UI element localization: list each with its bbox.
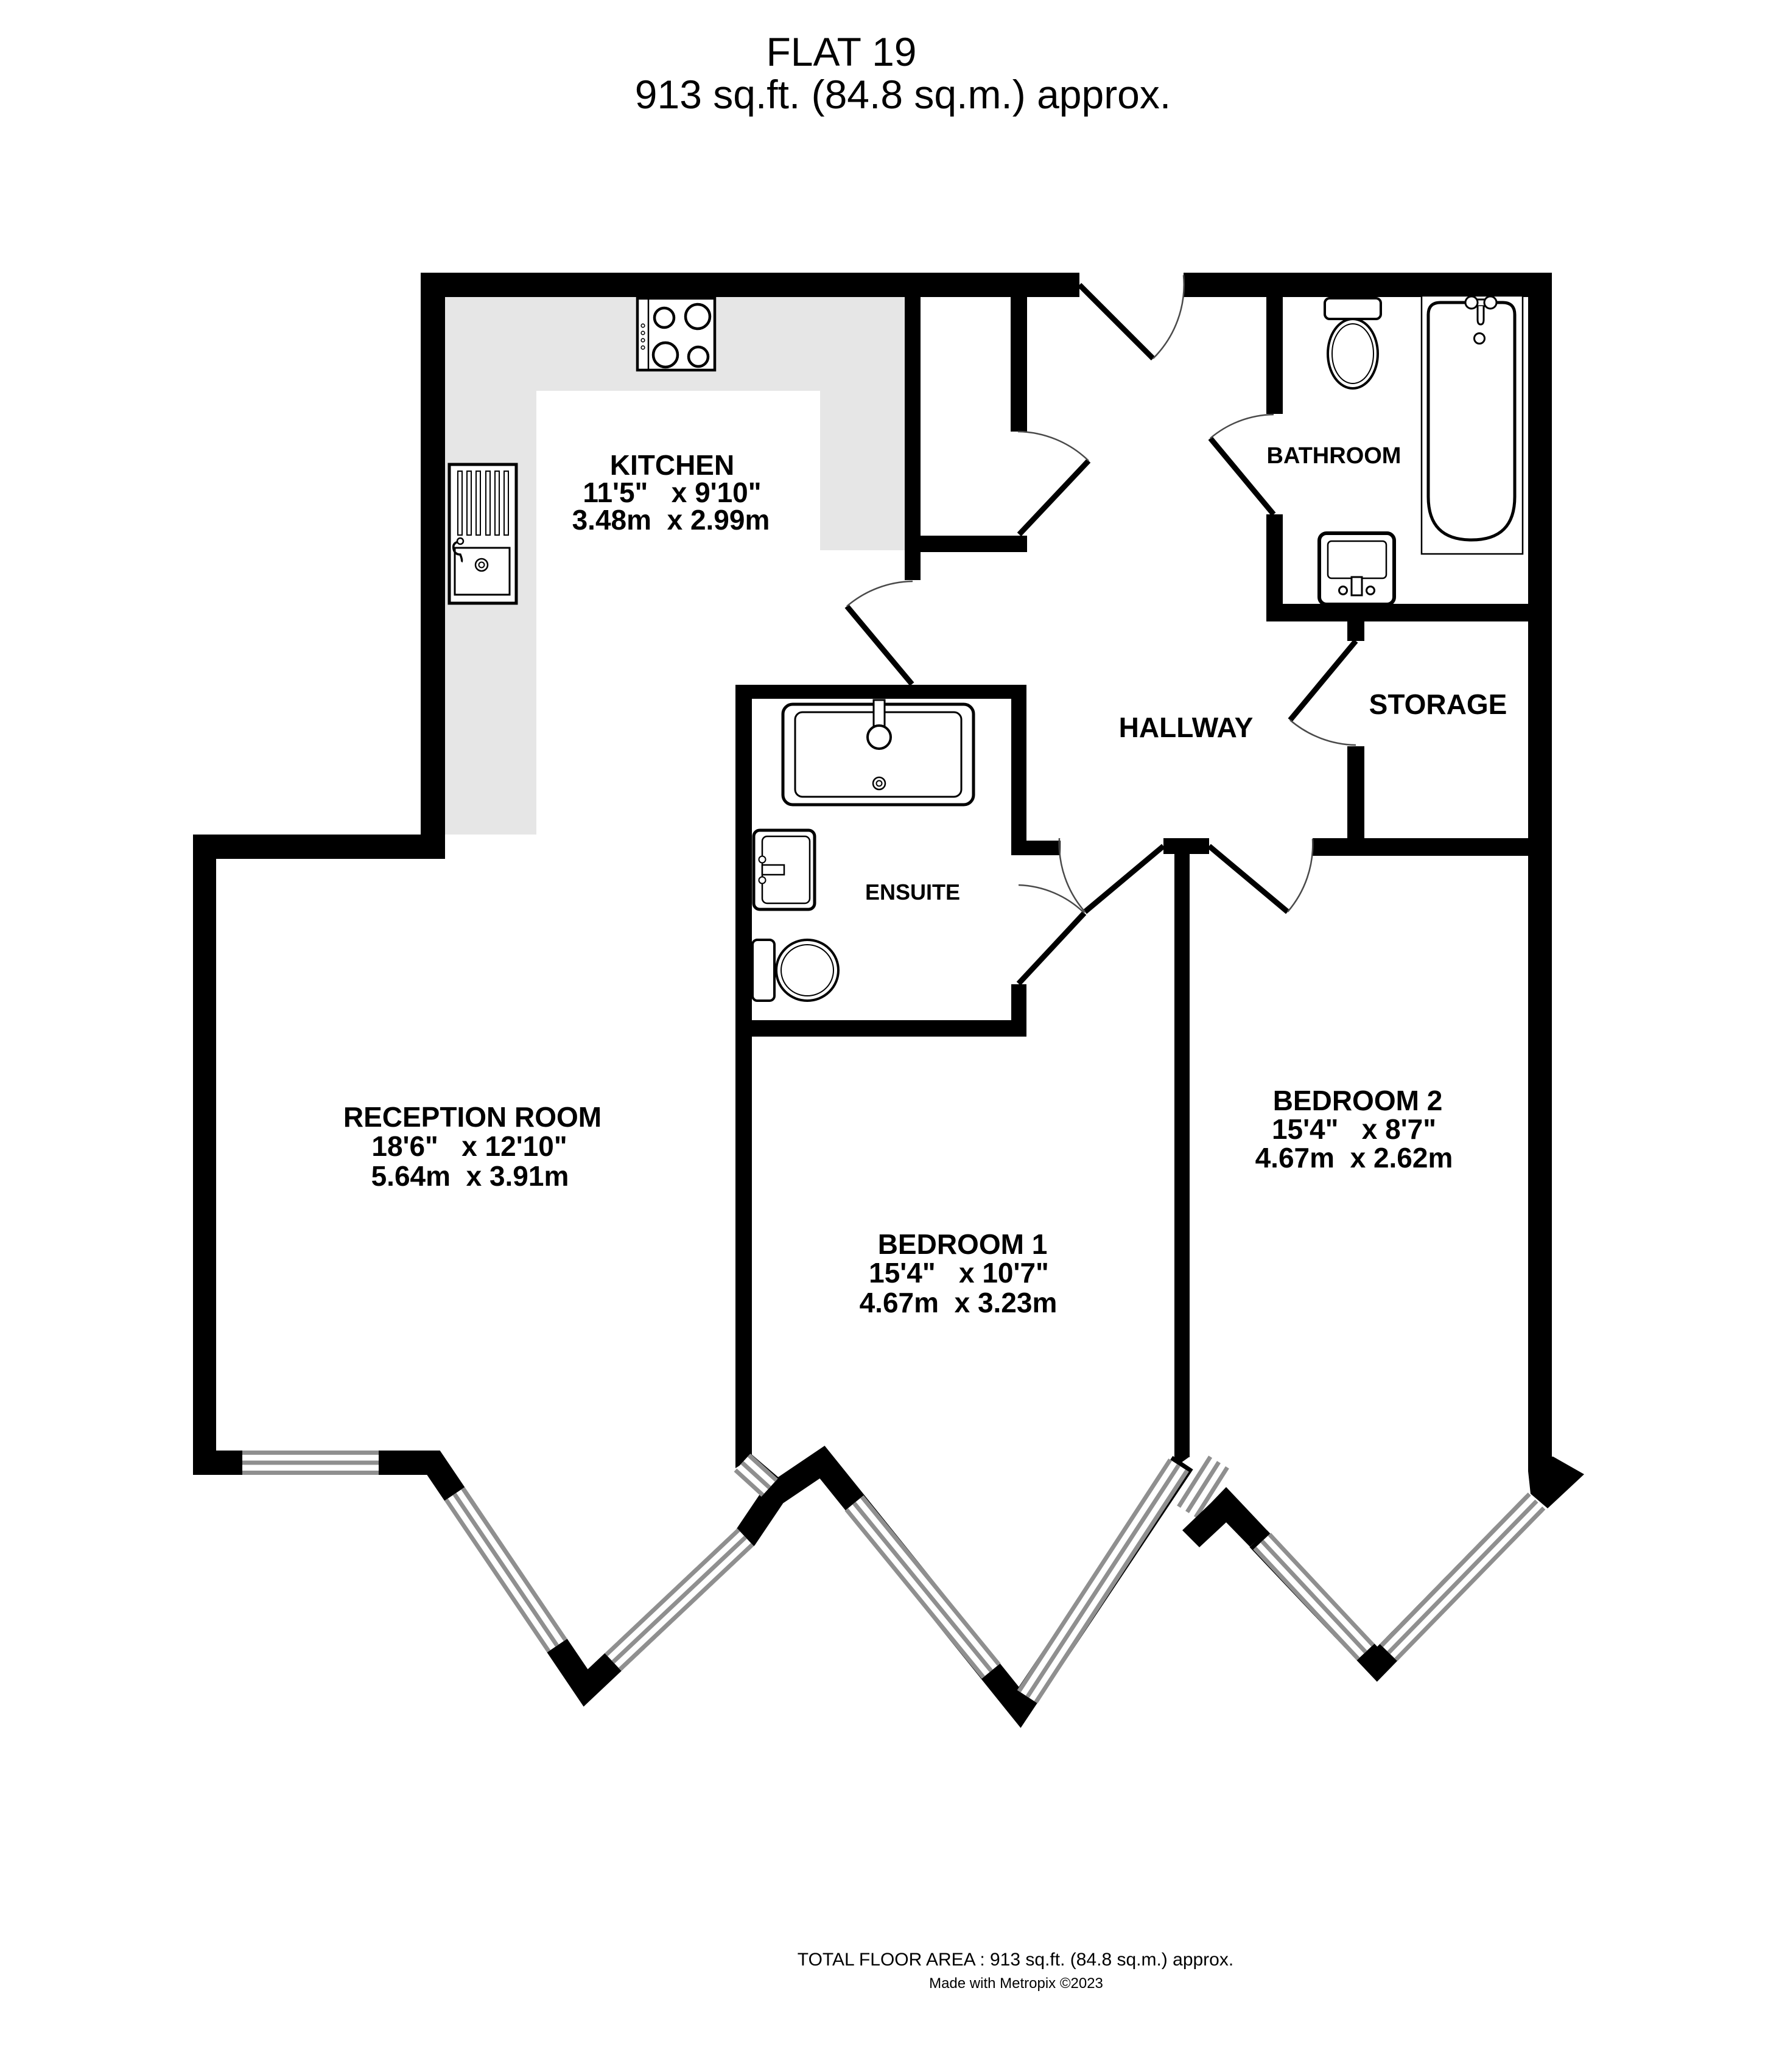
svg-text:BATHROOM: BATHROOM [1267, 443, 1401, 469]
svg-text:15'4" x 10'7": 15'4" x 10'7" [869, 1257, 1049, 1289]
svg-text:BEDROOM 1: BEDROOM 1 [878, 1228, 1048, 1260]
svg-text:4.67m x 2.62m: 4.67m x 2.62m [1255, 1142, 1453, 1174]
svg-text:3.48m x 2.99m: 3.48m x 2.99m [572, 504, 770, 536]
svg-text:Made with Metropix ©2023: Made with Metropix ©2023 [929, 1975, 1103, 1992]
svg-text:5.64m x 3.91m: 5.64m x 3.91m [371, 1160, 569, 1192]
svg-text:STORAGE: STORAGE [1369, 688, 1507, 720]
svg-text:15'4" x 8'7": 15'4" x 8'7" [1272, 1113, 1436, 1145]
svg-text:FLAT 19: FLAT 19 [766, 29, 916, 74]
svg-text:BEDROOM 2: BEDROOM 2 [1273, 1085, 1443, 1116]
svg-text:TOTAL FLOOR AREA : 913 sq.ft.: TOTAL FLOOR AREA : 913 sq.ft. (84.8 sq.m… [798, 1950, 1233, 1970]
svg-text:HALLWAY: HALLWAY [1119, 712, 1254, 743]
svg-text:ENSUITE: ENSUITE [865, 880, 960, 905]
svg-text:913 sq.ft. (84.8 sq.m.) approx: 913 sq.ft. (84.8 sq.m.) approx. [635, 72, 1171, 117]
svg-text:18'6" x 12'10": 18'6" x 12'10" [371, 1130, 567, 1162]
svg-text:4.67m x 3.23m: 4.67m x 3.23m [860, 1287, 1058, 1318]
svg-text:RECEPTION ROOM: RECEPTION ROOM [343, 1101, 602, 1133]
